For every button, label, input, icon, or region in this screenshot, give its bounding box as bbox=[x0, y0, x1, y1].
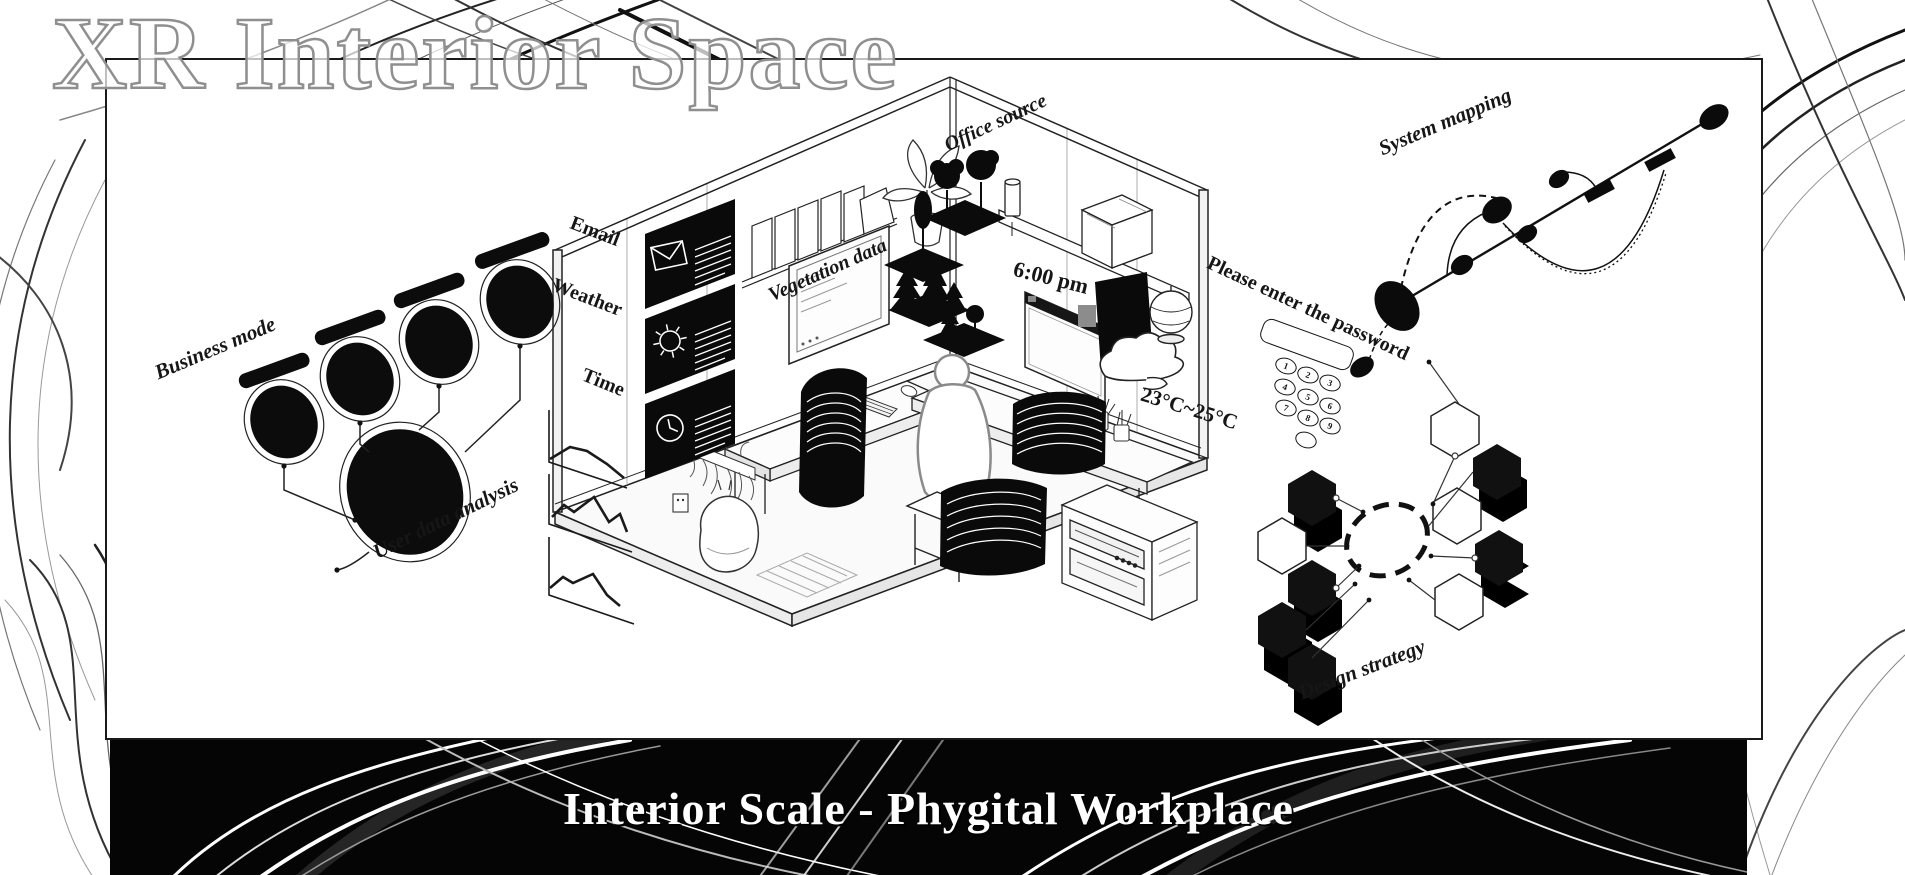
pc-cabinet bbox=[1062, 485, 1197, 620]
content-panel: Business mode User data analysis Email W… bbox=[105, 58, 1763, 740]
curved-screen-bottom[interactable] bbox=[940, 479, 1047, 576]
vegetation-stack bbox=[884, 150, 1006, 357]
info-panel-stack[interactable] bbox=[645, 199, 735, 479]
curved-screen-right[interactable] bbox=[1012, 392, 1106, 475]
footer-title: Interior Scale - Phygital Workplace bbox=[110, 782, 1747, 835]
page-title: XR Interior Space bbox=[52, 0, 899, 113]
wall-shelf bbox=[999, 179, 1189, 310]
presentation-board: XR Interior Space bbox=[0, 0, 1905, 875]
footer-band: Interior Scale - Phygital Workplace bbox=[110, 740, 1747, 875]
curved-screen-left[interactable] bbox=[799, 368, 867, 507]
isometric-illustration bbox=[107, 60, 1761, 738]
